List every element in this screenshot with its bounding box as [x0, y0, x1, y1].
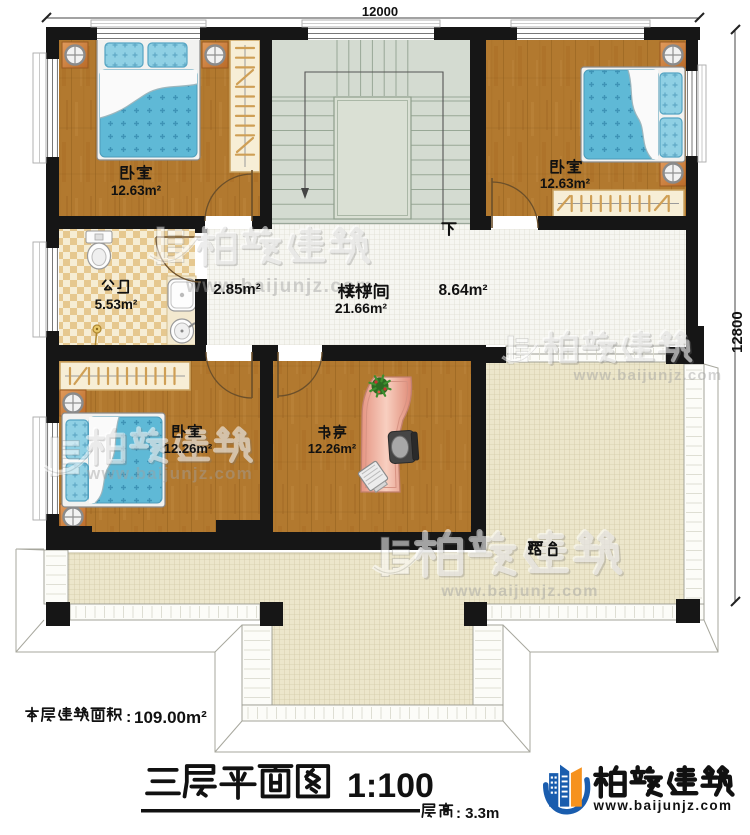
svg-text:8.64m²: 8.64m² [438, 282, 487, 299]
svg-text:109.00m²: 109.00m² [134, 708, 207, 727]
svg-text:www.baijunjz.com: www.baijunjz.com [86, 464, 253, 483]
svg-text:12.26m²: 12.26m² [164, 441, 213, 456]
svg-text:12.63m²: 12.63m² [540, 176, 591, 191]
svg-text:5.53m²: 5.53m² [95, 297, 138, 312]
svg-text::: : [126, 709, 131, 726]
svg-text:21.66m²: 21.66m² [335, 300, 387, 316]
svg-text:12.63m²: 12.63m² [111, 183, 162, 198]
svg-text:12.26m²: 12.26m² [308, 441, 357, 456]
svg-text:www.baijunjz.com: www.baijunjz.com [593, 798, 733, 813]
svg-text:2.85m²: 2.85m² [213, 281, 261, 298]
svg-text:: 3.3m: : 3.3m [456, 805, 499, 822]
svg-text:www.baijunjz.com: www.baijunjz.com [573, 367, 723, 384]
svg-text:www.baijunjz.com: www.baijunjz.com [440, 583, 598, 600]
svg-text:1:100: 1:100 [347, 767, 434, 805]
svg-text:12800: 12800 [729, 311, 746, 353]
svg-text:12000: 12000 [362, 4, 398, 19]
